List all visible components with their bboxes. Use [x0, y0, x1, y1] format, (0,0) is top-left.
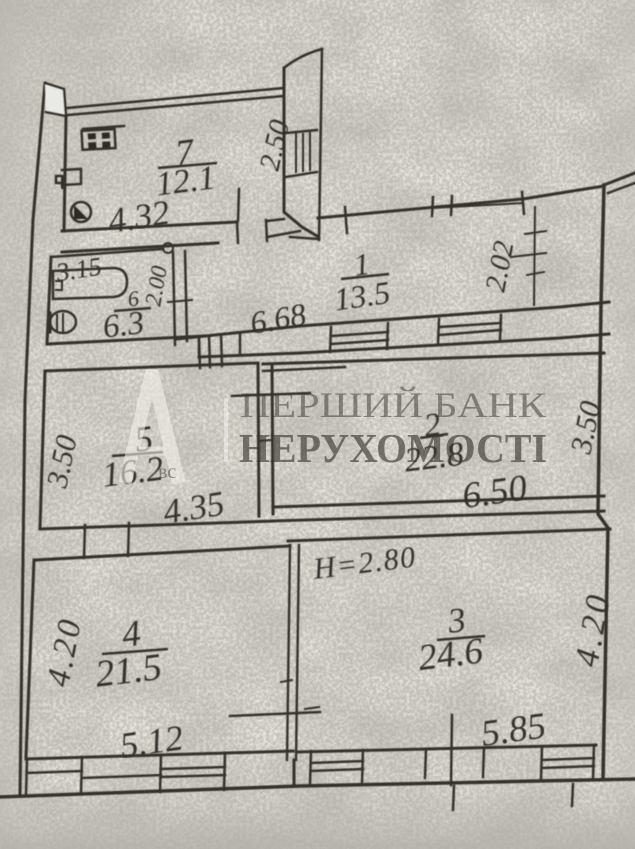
svg-text:вс: вс: [158, 461, 176, 483]
svg-text:24.6: 24.6: [416, 630, 486, 679]
svg-text:НЕРУХОМОСТІ: НЕРУХОМОСТІ: [239, 425, 547, 471]
svg-text:6.3: 6.3: [101, 305, 146, 346]
svg-text:21.5: 21.5: [93, 646, 164, 696]
svg-text:ПЕРШИЙ БАНК: ПЕРШИЙ БАНК: [240, 385, 547, 425]
